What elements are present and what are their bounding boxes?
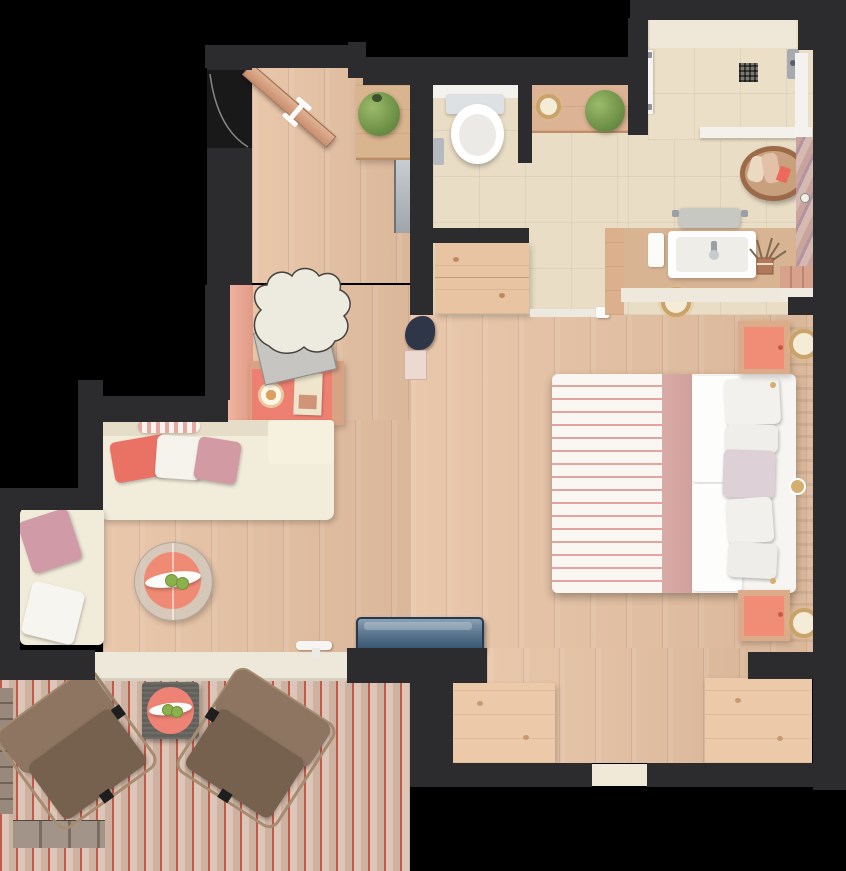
wall-bath-stub xyxy=(433,228,529,243)
nightstand-dot xyxy=(778,612,783,617)
wood-knot xyxy=(453,257,459,262)
bed[interactable] xyxy=(552,374,796,593)
bed-striped-blanket xyxy=(552,374,662,593)
chest-seam xyxy=(435,277,529,278)
wall-shower-divider xyxy=(628,18,648,135)
wall-entry-bath xyxy=(410,57,433,315)
wall-south-east xyxy=(647,763,813,787)
wall-east xyxy=(813,0,846,790)
shower-drain xyxy=(739,63,758,82)
shelf-candle xyxy=(536,94,561,119)
wall-headboard-stub xyxy=(788,297,813,315)
toilet-bowl-inner xyxy=(459,114,496,156)
glass-partition-v xyxy=(795,53,808,137)
wall-entry-left-lower xyxy=(207,148,252,265)
window-seat-west[interactable] xyxy=(453,683,555,763)
entry-plant xyxy=(358,92,400,136)
nightstand-south xyxy=(738,590,790,641)
bed-pillow-white xyxy=(725,496,774,544)
desk-tray xyxy=(258,382,284,408)
bed-pillow-white xyxy=(727,542,778,580)
south-door-sill xyxy=(592,764,647,786)
vanity-sink[interactable] xyxy=(668,231,756,278)
magazine-stack xyxy=(404,350,427,380)
desk-menu-card[interactable] xyxy=(293,373,322,416)
bed-pillow-mauve xyxy=(722,449,776,499)
wall-corridor-corner xyxy=(207,263,252,285)
terrace-door-handle-stem xyxy=(312,648,320,658)
headboard-ornament xyxy=(789,478,806,495)
entry-door-opening xyxy=(207,68,252,148)
wood-knot xyxy=(523,735,529,740)
wall-south-west xyxy=(410,763,592,787)
wall-living-left-band xyxy=(0,488,103,510)
terrace-table[interactable] xyxy=(142,682,199,739)
gold-tassel xyxy=(770,578,776,584)
bath-plant xyxy=(585,90,625,132)
wood-knot xyxy=(777,736,783,741)
terrace-door-sill xyxy=(95,652,347,681)
wood-knot xyxy=(499,293,505,298)
plant-berry xyxy=(372,94,382,102)
apple xyxy=(176,577,189,590)
planter-highlight xyxy=(364,622,472,630)
wood-knot xyxy=(477,701,483,706)
window-seat-east[interactable] xyxy=(705,678,812,763)
wall-bath-top xyxy=(363,57,630,85)
vanity-towel xyxy=(648,233,664,267)
stool-foot xyxy=(672,210,679,217)
nightstand-north xyxy=(738,321,790,374)
storage-chest xyxy=(435,243,529,314)
towel-stool[interactable] xyxy=(672,206,748,230)
sofa-end-section xyxy=(268,420,334,464)
apple xyxy=(171,706,183,718)
wardrobe-knob[interactable] xyxy=(800,193,810,203)
entry-mirror xyxy=(394,160,411,233)
faucet-base xyxy=(709,250,719,260)
wall-terrace-pillar xyxy=(347,648,487,683)
wood-knot xyxy=(735,698,741,703)
stool-foot xyxy=(741,210,748,217)
sofa-cushion-mauve xyxy=(193,436,242,485)
wall-outer-west xyxy=(0,510,20,662)
terracotta-trim xyxy=(780,266,815,288)
menu-card-picture xyxy=(298,395,316,410)
bed-runner xyxy=(662,374,692,593)
floor-plan xyxy=(0,0,846,871)
wall-entry-left-upper xyxy=(207,45,252,70)
toilet-paper-holder xyxy=(433,138,444,165)
stool-towel xyxy=(678,208,740,228)
wall-corridor-left xyxy=(205,285,230,400)
gold-tassel xyxy=(770,382,776,388)
shower-wall-band xyxy=(650,20,796,48)
coffee-table[interactable] xyxy=(134,542,213,621)
wall-wc-divider xyxy=(518,77,532,163)
wall-living-bottom xyxy=(0,650,95,680)
toilet-bowl[interactable] xyxy=(451,104,504,164)
wall-bay-east-stub xyxy=(748,652,813,679)
nightstand-dot xyxy=(778,345,783,350)
